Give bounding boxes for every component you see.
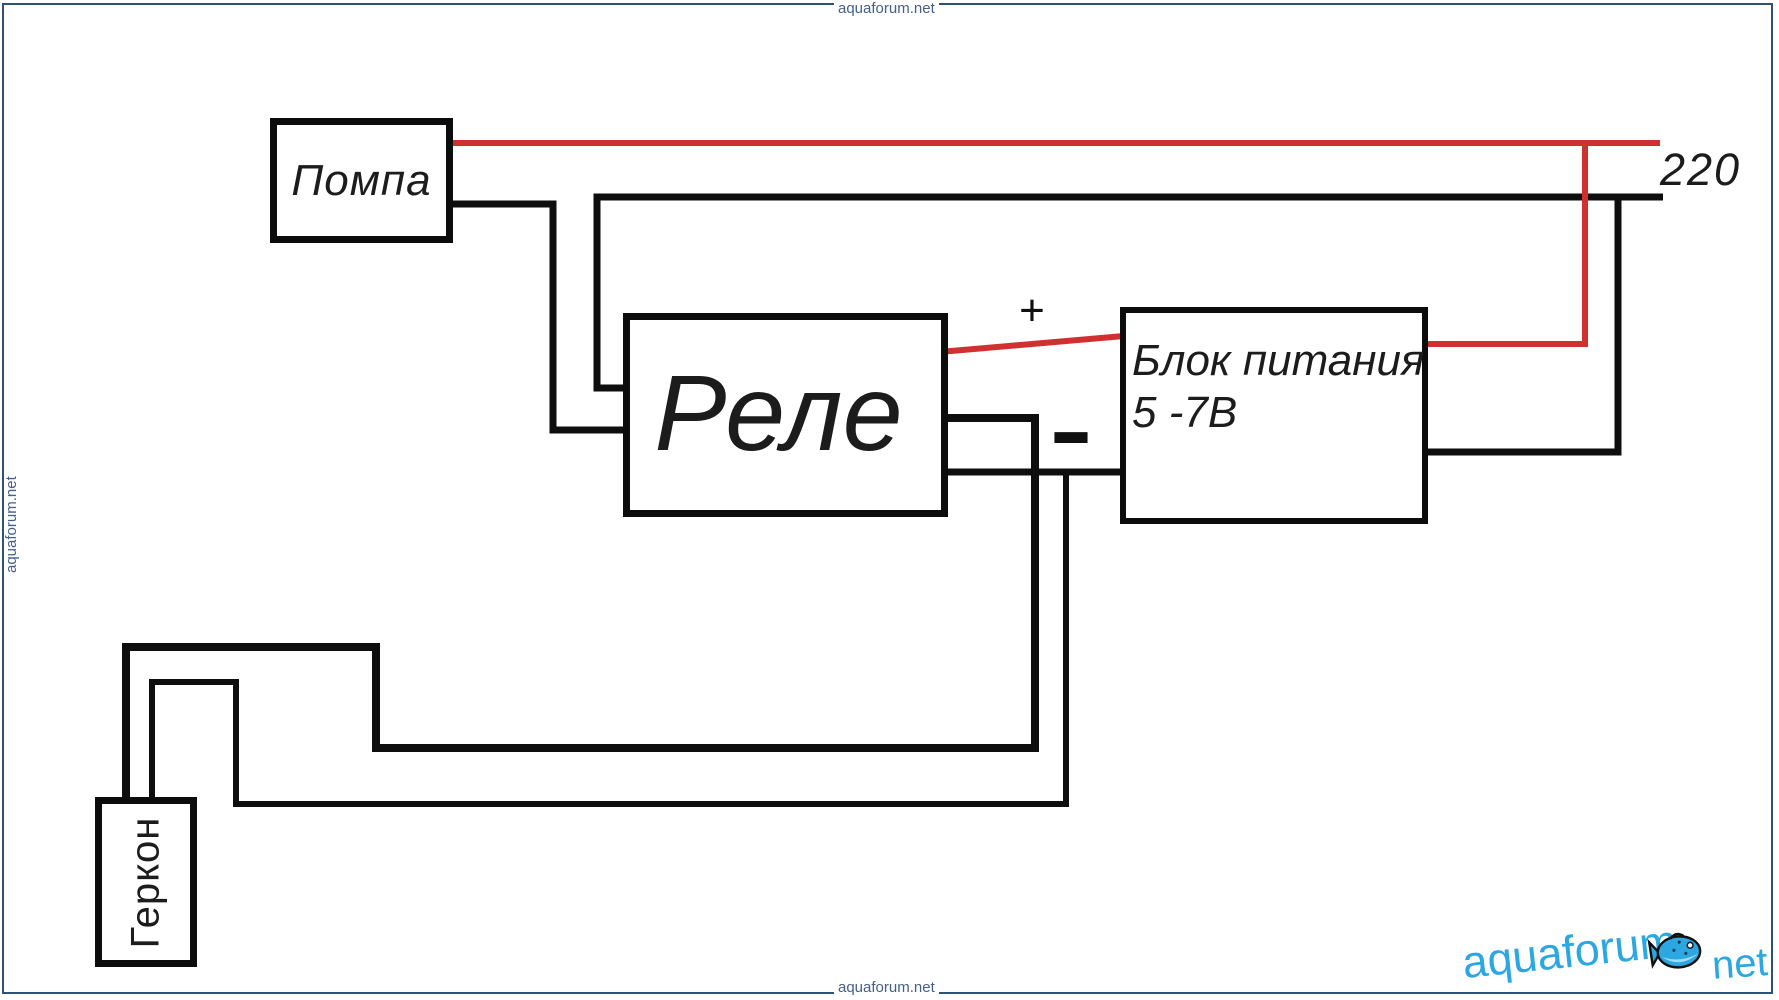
watermark-left: aquaforum.net [3,472,20,577]
mains-voltage-label: 220 [1660,144,1779,194]
wire-minus-to-reed-inner [152,472,1066,804]
wire-relay-plus-red [928,336,1124,353]
watermark-bottom: aquaforum.net [834,979,939,996]
reed-switch-box: Геркон [95,797,197,967]
wire-red-drop-to-psu [1424,146,1585,344]
reed-switch-label: Геркон [124,816,169,948]
fish-icon [1646,924,1707,980]
power-supply-label-line2: 5 -7В [1132,387,1424,439]
minus-polarity-label: − [1048,403,1094,469]
pump-box: Помпа [270,118,453,243]
watermark-top: aquaforum.net [834,0,939,17]
logo-text-net: net [1710,940,1769,989]
wiring-diagram: Помпа Реле Блок питания 5 -7В Геркон + −… [0,0,1779,1000]
wire-mains-to-psu [1425,197,1618,452]
relay-label: Реле [654,350,902,475]
pump-label: Помпа [291,156,431,206]
plus-polarity-label: + [1012,288,1052,334]
power-supply-label: Блок питания 5 -7В [1126,313,1424,439]
relay-box: Реле [623,313,948,517]
power-supply-box: Блок питания 5 -7В [1120,307,1428,524]
power-supply-label-line1: Блок питания [1132,335,1424,387]
